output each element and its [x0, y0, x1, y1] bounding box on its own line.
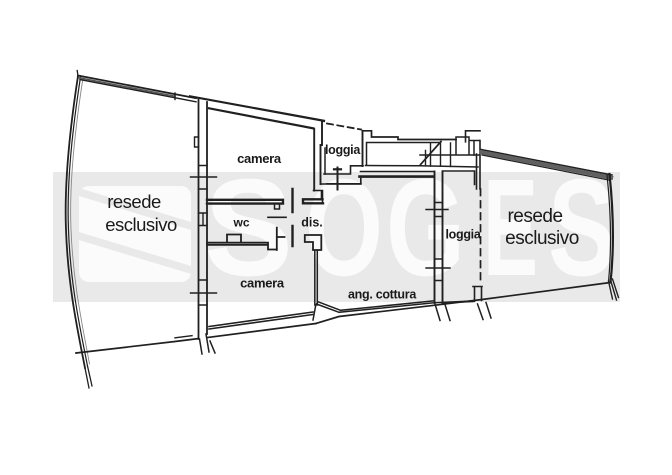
svg-text:esclusivo: esclusivo	[505, 228, 579, 249]
svg-text:resede: resede	[107, 191, 161, 212]
svg-text:wc: wc	[232, 216, 249, 230]
svg-text:loggia: loggia	[325, 143, 361, 157]
svg-text:ang. cottura: ang. cottura	[348, 288, 417, 302]
svg-text:esclusivo: esclusivo	[105, 214, 177, 235]
svg-text:camera: camera	[240, 276, 285, 291]
svg-text:loggia: loggia	[445, 228, 481, 242]
svg-text:camera: camera	[237, 151, 282, 166]
svg-text:dis.: dis.	[301, 216, 323, 230]
svg-text:resede: resede	[507, 206, 562, 227]
